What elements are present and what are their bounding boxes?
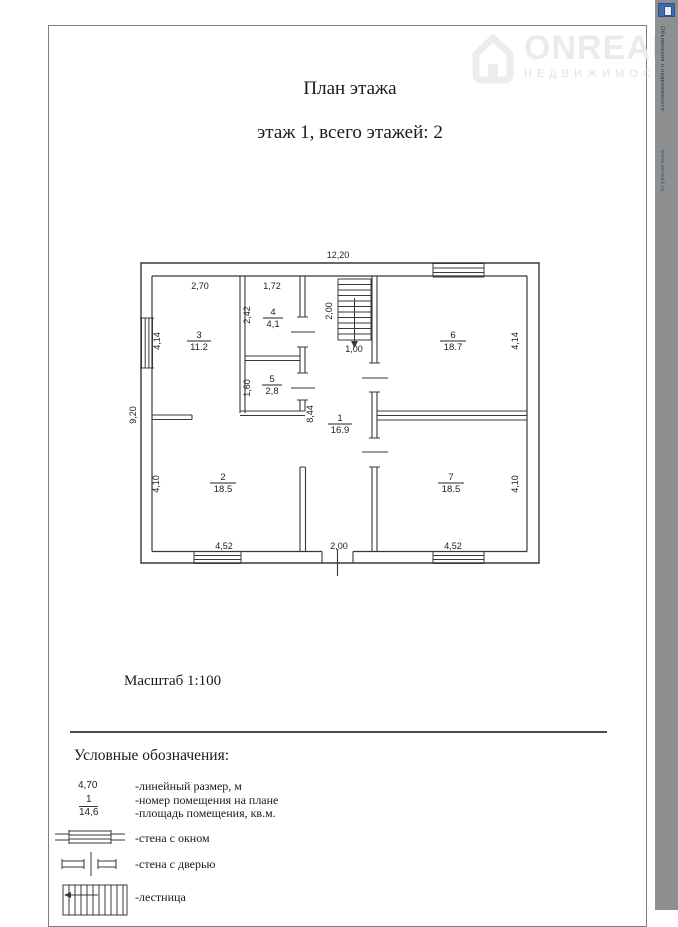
page-title: План этажа [100,78,600,100]
plan-stairs [338,279,371,348]
room-1-number: 1 [337,413,342,424]
sidebar-vertical-text: Объявления о недвижимости [659,26,665,111]
dim-room7-width: 4,52 [444,541,462,551]
screenshot-root: { "header": { "title": "План этажа", "su… [0,0,678,910]
dim-room5-height: 1,60 [242,379,252,397]
dim-room4-width: 1,72 [263,281,281,291]
room-3-area: 11.2 [190,342,208,353]
room-5-area: 2,8 [265,386,278,397]
dim-overall-height: 9,20 [128,406,138,424]
dim-room3-height: 4,14 [152,332,162,350]
dim-stairs-width: 1,00 [345,344,363,354]
room-3-number: 3 [196,330,201,341]
dim-room2-width: 4,52 [215,541,233,551]
document-viewer-icon[interactable] [658,3,675,17]
dim-room2-height: 4,10 [151,475,161,493]
dim-room7-height: 4,10 [510,475,520,493]
room-5-number: 5 [269,374,274,385]
dim-overall-width: 12,20 [327,250,350,260]
plan-labels: 12,20 9,20 2,70 4,14 3 11.2 1,72 2,42 4 … [128,250,520,551]
room-1-area: 16.9 [331,425,350,436]
dim-room3-width: 2,70 [191,281,209,291]
dim-stairs-length: 2,00 [324,302,334,320]
room-7-number: 7 [448,472,453,483]
room-6-area: 18.7 [444,342,463,353]
page-subtitle: этаж 1, всего этажей: 2 [100,122,600,144]
room-2-area: 18.5 [214,484,233,495]
room-2-number: 2 [220,472,225,483]
room-7-area: 18.5 [442,484,461,495]
viewer-sidebar: Объявления о недвижимости www.onrealt.ru [655,0,678,910]
room-6-number: 6 [450,330,455,341]
dim-room4-height: 2,42 [242,306,252,324]
dim-entry-door: 2,00 [330,541,348,551]
room-4-number: 4 [270,307,275,318]
dim-room6-height: 4,14 [510,332,520,350]
room-4-area: 4,1 [266,319,279,330]
dim-hall-height: 8,44 [305,405,315,423]
sidebar-vertical-url: www.onrealt.ru [659,150,665,192]
